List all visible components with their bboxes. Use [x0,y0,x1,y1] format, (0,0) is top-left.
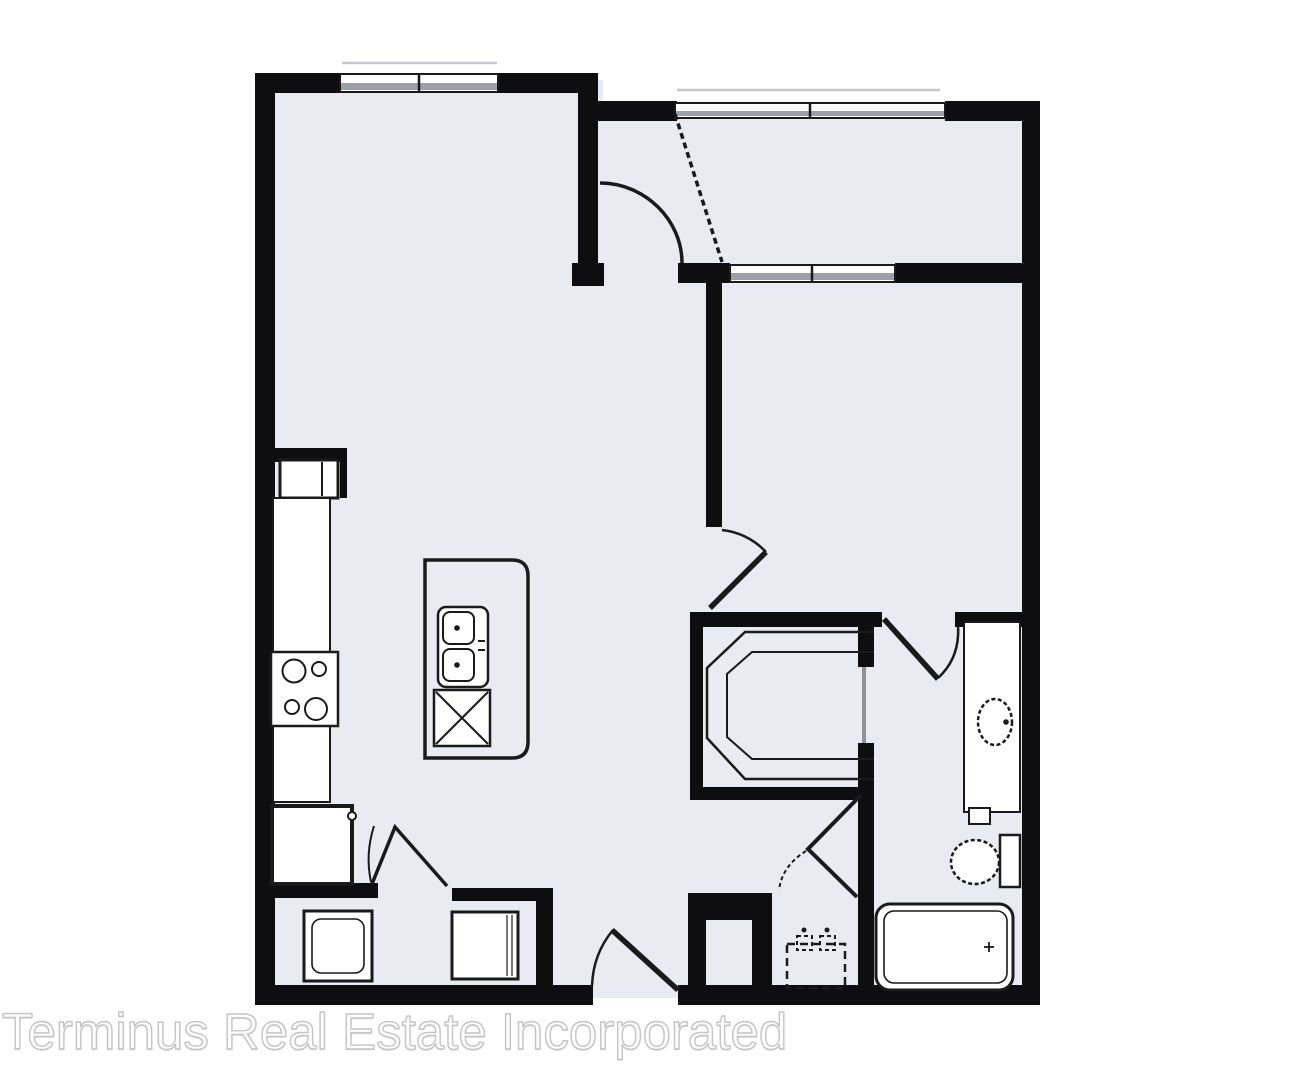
floor-area [260,80,1035,998]
vanity-end-detail [969,808,990,824]
dishwasher-icon [434,690,490,746]
toilet-icon [951,835,1020,887]
wall-divider-cap [572,263,604,286]
cooktop-icon [271,652,338,726]
bathtub-icon [876,904,1013,990]
refrigerator-icon [280,460,338,498]
wall-fridge-stub-cap [340,448,347,498]
wall-closet-bottom [690,787,865,800]
wall-balcony-top-a [578,101,677,121]
floor-plan-page: Terminus Real Estate Incorporated [0,0,1295,1080]
wall-chase-left [688,920,706,988]
wall-closet-right-upper [858,612,874,667]
wall-laundry-front-b [452,888,550,901]
wall-bedroom-left [706,283,722,527]
dryer-icon [452,912,518,979]
kitchen-counter-icon [273,498,330,802]
wall-bedroom-top-a [678,263,730,283]
window-living [340,73,498,93]
wall-bedroom-top-b [895,263,1040,283]
double-sink-icon [438,607,488,687]
window-balcony [675,102,945,118]
wall-hall-stub [688,893,772,920]
wall-exterior-right-main [1022,263,1040,1005]
wall-exterior-right-upper [1022,106,1040,283]
wall-closet-left [690,612,703,800]
wall-laundry-right [536,888,553,988]
watermark-text: Terminus Real Estate Incorporated [2,1002,787,1061]
floor-plan-drawing [0,0,1295,1080]
pantry-cabinet-icon [272,806,352,884]
wall-chase-right [752,920,772,988]
closet-pocket-door [862,667,866,743]
window-bedroom [730,264,895,282]
pantry-knob [348,812,356,820]
vanity-faucet [1003,719,1009,725]
washer-icon [304,911,372,981]
wall-top-left-a [255,73,342,93]
wall-closet-top [690,612,882,627]
